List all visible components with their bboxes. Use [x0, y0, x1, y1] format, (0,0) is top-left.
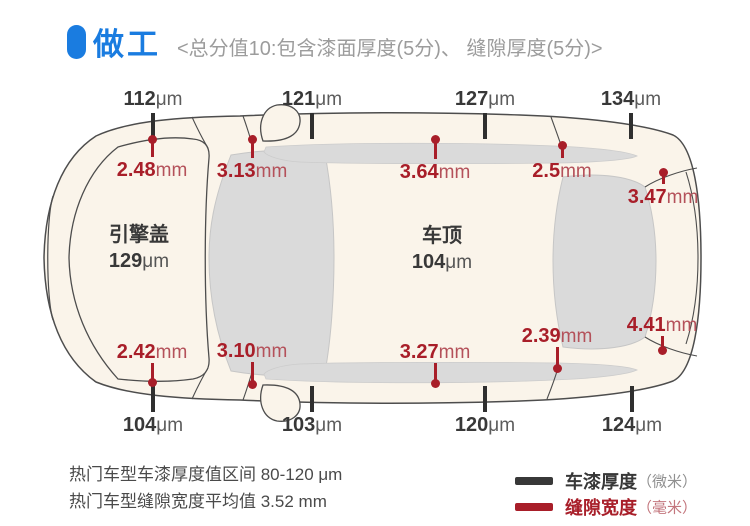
hood-label: 引擎盖 129μm: [74, 222, 204, 276]
gap-measurement-unit: mm: [667, 187, 699, 208]
car-top-view-diagram: 引擎盖 129μm 车顶 104μm 112μm121μm127μm134μm1…: [0, 0, 750, 526]
paint-measurement-value: 103: [282, 414, 315, 436]
gap-measurement: 3.64mm: [370, 161, 500, 184]
note-paint-range: 热门车型车漆厚度值区间 80-120 μm: [69, 460, 342, 485]
paint-measurement-value: 112: [123, 88, 155, 110]
measurement-overlay: 引擎盖 129μm 车顶 104μm 112μm121μm127μm134μm1…: [0, 0, 750, 526]
gap-measurement-value: 3.13: [217, 160, 256, 182]
paint-measurement: 124μm: [567, 414, 697, 437]
gap-measurement: 2.5mm: [497, 160, 627, 183]
paint-measurement-unit: μm: [315, 89, 342, 110]
paint-measurement-value: 127: [455, 88, 488, 110]
roof-paint-value: 104: [412, 251, 445, 273]
gap-line-swatch: [515, 503, 553, 511]
legend-gap-label: 缝隙宽度: [565, 498, 637, 518]
paint-measurement-unit: μm: [156, 89, 183, 110]
gap-measurement-value: 4.41: [627, 314, 666, 336]
paint-measurement-value: 124: [602, 414, 635, 436]
gap-measurement-value: 2.39: [522, 325, 561, 347]
workmanship-infographic: 做工 <总分值10:包含漆面厚度(5分)、 缝隙厚度(5分)>: [0, 0, 750, 526]
gap-measurement-value: 2.5: [532, 160, 560, 182]
paint-tick-mark: [483, 386, 487, 412]
paint-tick-mark: [483, 113, 487, 139]
gap-measurement-unit: mm: [256, 161, 288, 182]
gap-pin-stem: [251, 142, 254, 158]
gap-measurement: 3.10mm: [187, 340, 317, 363]
gap-pin-stem: [661, 336, 664, 347]
paint-measurement-value: 104: [123, 414, 156, 436]
legend-paint-label: 车漆厚度: [565, 472, 637, 492]
paint-measurement-unit: μm: [635, 415, 662, 436]
hood-name: 引擎盖: [74, 222, 204, 248]
paint-measurement-value: 134: [601, 88, 634, 110]
paint-measurement-unit: μm: [634, 89, 661, 110]
gap-measurement-unit: mm: [560, 161, 592, 182]
gap-pin-stem: [151, 142, 154, 157]
gap-measurement-value: 3.47: [628, 186, 667, 208]
gap-pin-stem: [561, 148, 564, 158]
gap-measurement-value: 3.64: [400, 161, 439, 183]
paint-measurement-unit: μm: [488, 415, 515, 436]
legend-paint-unit: （微米）: [637, 474, 697, 491]
gap-measurement-unit: mm: [256, 341, 288, 362]
paint-line-swatch: [515, 477, 553, 485]
note-gap-average: 热门车型缝隙宽度平均值 3.52 mm: [69, 487, 327, 512]
roof-paint-unit: μm: [445, 252, 472, 273]
paint-measurement-unit: μm: [488, 89, 515, 110]
gap-pin-stem: [556, 347, 559, 365]
gap-measurement-unit: mm: [561, 326, 593, 347]
paint-tick-mark: [629, 113, 633, 139]
paint-measurement-value: 121: [282, 88, 315, 110]
paint-measurement: 104μm: [88, 414, 218, 437]
gap-measurement-value: 3.27: [400, 341, 439, 363]
gap-measurement: 3.47mm: [598, 186, 728, 209]
legend-paint-thickness: 车漆厚度（微米）: [515, 468, 697, 494]
gap-measurement-unit: mm: [156, 342, 188, 363]
paint-measurement-value: 120: [455, 414, 488, 436]
gap-measurement: 3.27mm: [370, 341, 500, 364]
gap-measurement-value: 2.42: [117, 341, 156, 363]
gap-pin-stem: [151, 363, 154, 379]
paint-measurement-unit: μm: [156, 415, 183, 436]
paint-measurement: 127μm: [420, 88, 550, 111]
gap-pin-stem: [434, 363, 437, 380]
paint-measurement: 103μm: [247, 414, 377, 437]
paint-measurement: 120μm: [420, 414, 550, 437]
legend-gap-unit: （毫米）: [637, 500, 697, 517]
gap-measurement-value: 2.48: [117, 159, 156, 181]
gap-measurement-unit: mm: [666, 315, 698, 336]
hood-paint-value: 129: [109, 250, 142, 272]
paint-tick-mark: [310, 386, 314, 412]
gap-measurement: 3.13mm: [187, 160, 317, 183]
paint-measurement: 112μm: [88, 88, 218, 111]
paint-measurement: 134μm: [566, 88, 696, 111]
gap-measurement-unit: mm: [439, 162, 471, 183]
roof-name: 车顶: [377, 223, 507, 249]
paint-measurement: 121μm: [247, 88, 377, 111]
gap-measurement-value: 3.10: [217, 340, 256, 362]
paint-tick-mark: [630, 386, 634, 412]
gap-measurement: 4.41mm: [597, 314, 727, 337]
paint-tick-mark: [151, 386, 155, 412]
paint-measurement-unit: μm: [315, 415, 342, 436]
gap-measurement-unit: mm: [156, 160, 188, 181]
legend-gap-width: 缝隙宽度（毫米）: [515, 494, 697, 520]
gap-measurement-unit: mm: [439, 342, 471, 363]
gap-pin-stem: [434, 142, 437, 159]
hood-paint-unit: μm: [142, 251, 169, 272]
gap-pin-stem: [251, 362, 254, 381]
paint-tick-mark: [310, 113, 314, 139]
roof-label: 车顶 104μm: [377, 223, 507, 277]
gap-pin-stem: [662, 175, 665, 184]
